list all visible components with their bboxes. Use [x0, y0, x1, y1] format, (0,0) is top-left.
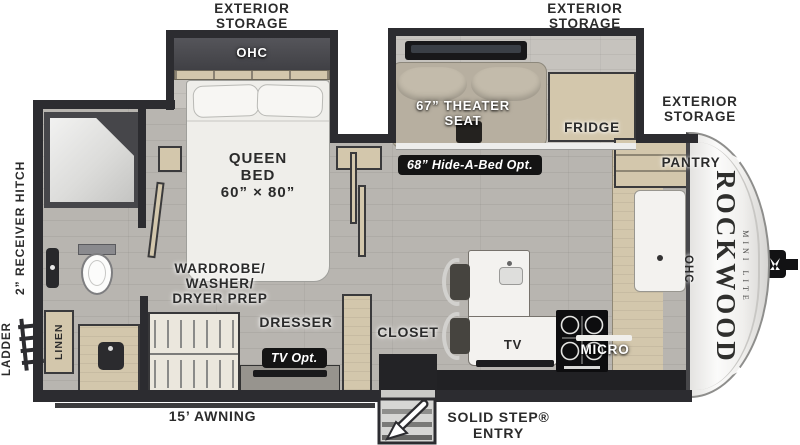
label-tv: TV [486, 338, 540, 353]
label-ohc-bedroom: OHC [174, 46, 330, 61]
faucet-dot [108, 346, 113, 351]
wardrobe [148, 312, 240, 393]
wall [33, 390, 379, 402]
wall [330, 30, 338, 143]
awning-bar [55, 403, 375, 408]
bed-seam [187, 120, 329, 122]
wall [166, 30, 338, 38]
island-tv-bar [476, 360, 554, 367]
wall [388, 28, 644, 36]
label-theater-seat: 67” THEATER SEAT [398, 98, 528, 128]
wall [166, 30, 174, 110]
label-exterior-storage-front: EXTERIOR STORAGE [638, 94, 762, 124]
wall [437, 390, 692, 402]
label-micro: MICRO [572, 342, 638, 357]
seat-cushion [397, 67, 467, 101]
cabinet-handle [657, 255, 663, 261]
nightstand-right [336, 146, 382, 170]
bedroom-door [350, 152, 357, 224]
label-exterior-storage-living: EXTERIOR STORAGE [500, 1, 670, 31]
entry-mat [379, 354, 437, 390]
wall [636, 134, 698, 143]
shower [44, 112, 140, 208]
wall-bath-partition [140, 296, 148, 396]
label-dresser: DRESSER [250, 315, 342, 331]
wall [330, 134, 396, 143]
label-exterior-storage-bedroom: EXTERIOR STORAGE [172, 1, 332, 31]
label-wardrobe: WARDROBE/ WASHER/ DRYER PREP [138, 261, 302, 306]
kitchen-counter-bottom [437, 370, 692, 392]
slideout-floor-lip [396, 143, 636, 150]
range-hood-bar [576, 335, 632, 341]
label-fridge: FRIDGE [548, 120, 636, 135]
dresser-unit [240, 365, 340, 392]
label-queen-bed: QUEEN BED 60” × 80” [188, 150, 328, 201]
chair-seat [450, 264, 470, 300]
kitchen-island-top [468, 250, 530, 320]
counter-chair [442, 258, 472, 306]
hitch-bar [784, 259, 798, 270]
entry-steps-icon [377, 397, 437, 445]
brand-trim: MINI LITE [741, 162, 750, 372]
label-ladder: LADDER [0, 310, 15, 388]
floorplan-canvas: EXTERIOR STORAGE EXTERIOR STORAGE EXTERI… [0, 0, 800, 445]
label-linen: LINEN [46, 312, 72, 372]
hide-a-bed-badge: 68” Hide-A-Bed Opt. [398, 155, 542, 175]
bath-sink [98, 342, 124, 370]
ohc-cabinet-bedroom [174, 70, 330, 80]
tv-opt-badge: TV Opt. [262, 348, 327, 368]
shower-pan [50, 118, 134, 202]
pillow [256, 84, 323, 118]
brand-logo: MINI LITE ROCKWOOD [702, 162, 758, 372]
wall [388, 28, 396, 143]
label-pantry: PANTRY [636, 155, 746, 170]
closet [342, 294, 372, 392]
pillow [192, 84, 259, 118]
label-receiver-hitch: 2” RECEIVER HITCH [10, 140, 30, 315]
label-awning: 15’ AWNING [155, 409, 270, 425]
bedroom-slider-rail [358, 185, 366, 257]
wall [33, 100, 175, 109]
counter-chair [442, 312, 472, 360]
hanging-rod [154, 320, 234, 348]
faucet-dot [50, 265, 55, 270]
tv-on-dresser [253, 370, 327, 377]
label-solid-step-entry: SOLID STEP® ENTRY [436, 410, 561, 441]
chair-seat [450, 318, 470, 354]
wall-bath-partition [138, 106, 146, 228]
sink-cabinet [634, 190, 686, 292]
wall [636, 28, 644, 143]
exterior-gap-mid [338, 100, 388, 134]
wall [33, 100, 43, 402]
island-sink [499, 267, 523, 285]
range-stove [556, 310, 608, 372]
hanging-rod [154, 360, 234, 388]
faucet-dot [507, 261, 512, 266]
label-closet: CLOSET [374, 325, 442, 341]
brand-name: ROCKWOOD [710, 162, 741, 372]
nightstand-left [158, 146, 182, 172]
seat-cushion [471, 67, 541, 101]
slideout-tv [405, 41, 527, 60]
label-ohc-kitchen: OHC [680, 246, 696, 292]
bath-cabinet-small [46, 248, 59, 288]
